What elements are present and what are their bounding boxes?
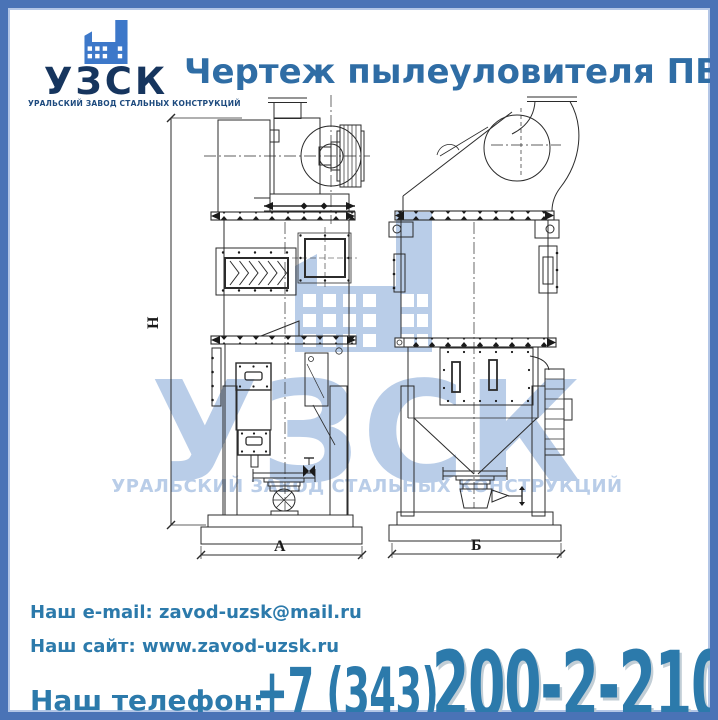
front-view: Н (145, 95, 370, 559)
site-label: Наш сайт: (30, 636, 136, 657)
technical-drawing: Н (8, 8, 718, 588)
dimension-label-front-width: А (274, 538, 286, 555)
email-value: zavod-uzsk@mail.ru (159, 602, 362, 623)
dimension-label-side-width: Б (471, 537, 482, 554)
email-line: Наш e-mail: zavod-uzsk@mail.ru (30, 602, 362, 623)
side-view: Б (388, 97, 579, 558)
dimension-label-height: Н (145, 316, 162, 329)
email-label: Наш e-mail: (30, 602, 153, 623)
phone-prefix: +7 (343) (256, 660, 438, 720)
page: УЗСК УРАЛЬСКИЙ ЗАВОД СТАЛЬНЫХ КОНСТРУКЦИ… (0, 0, 718, 720)
phone-label: Наш телефон: (30, 684, 264, 717)
phone-number: 200-2-210 (432, 640, 718, 720)
